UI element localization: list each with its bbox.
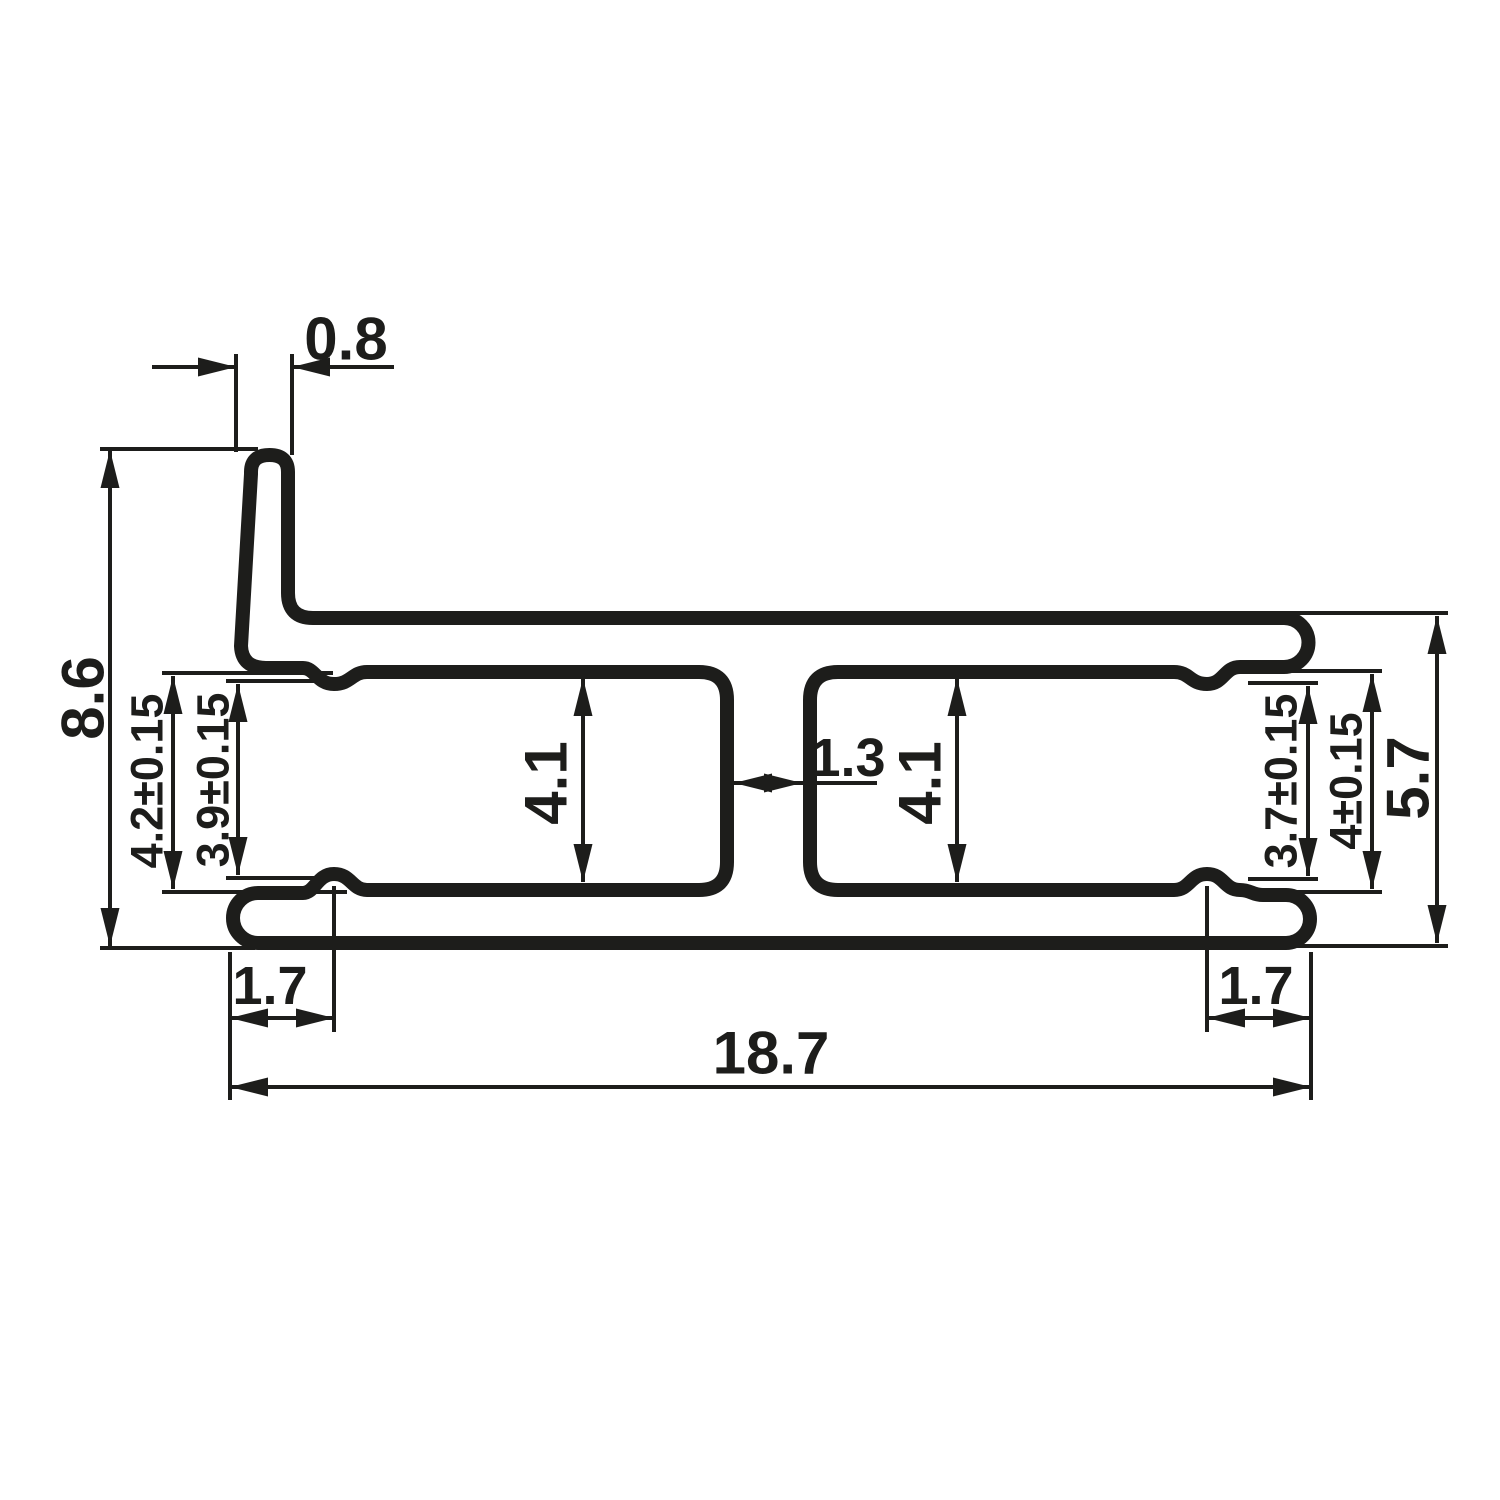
dim-label-left-slot-inner-height: 4.1 <box>513 741 580 824</box>
arrowhead-icon <box>101 450 120 488</box>
profile-outline <box>233 455 1310 943</box>
arrowhead-icon <box>1363 851 1382 889</box>
arrowhead-icon <box>1428 905 1447 943</box>
dim-label-overall-height-left: 8.6 <box>50 656 117 739</box>
arrowhead-icon <box>230 1078 268 1097</box>
profile-drawing-canvas: 0.8 8.6 4.2±0.15 3.9±0.15 4.1 1.3 4.1 3.… <box>0 0 1500 1500</box>
arrowhead-icon <box>198 358 236 377</box>
dim-label-bottom-right-end: 1.7 <box>1218 956 1293 1016</box>
dim-label-lip-width: 0.8 <box>304 306 387 373</box>
arrowhead-icon <box>948 844 967 882</box>
dim-label-left-slot-opening: 4.2±0.15 <box>122 694 173 869</box>
dim-label-center-web-thickness: 1.3 <box>810 728 885 788</box>
arrowhead-icon <box>1363 674 1382 712</box>
dim-label-overall-width: 18.7 <box>713 1020 830 1087</box>
arrowhead-icon <box>574 844 593 882</box>
arrowhead-icon <box>1273 1078 1311 1097</box>
arrowhead-icon <box>1428 616 1447 654</box>
dim-label-right-slot-inner-height: 4.1 <box>887 741 954 824</box>
dim-label-right-overall-height: 5.7 <box>1375 736 1442 819</box>
dim-label-right-slot-between-nubs: 3.7±0.15 <box>1256 694 1307 869</box>
dim-label-bottom-left-end: 1.7 <box>232 956 307 1016</box>
arrowhead-icon <box>574 678 593 716</box>
arrowhead-icon <box>101 908 120 946</box>
dim-label-left-slot-between-nubs: 3.9±0.15 <box>188 693 239 868</box>
arrowhead-icon <box>948 678 967 716</box>
technical-drawing-page: 0.8 8.6 4.2±0.15 3.9±0.15 4.1 1.3 4.1 3.… <box>0 0 1500 1500</box>
dim-label-right-slot-opening: 4±0.15 <box>1321 712 1372 849</box>
